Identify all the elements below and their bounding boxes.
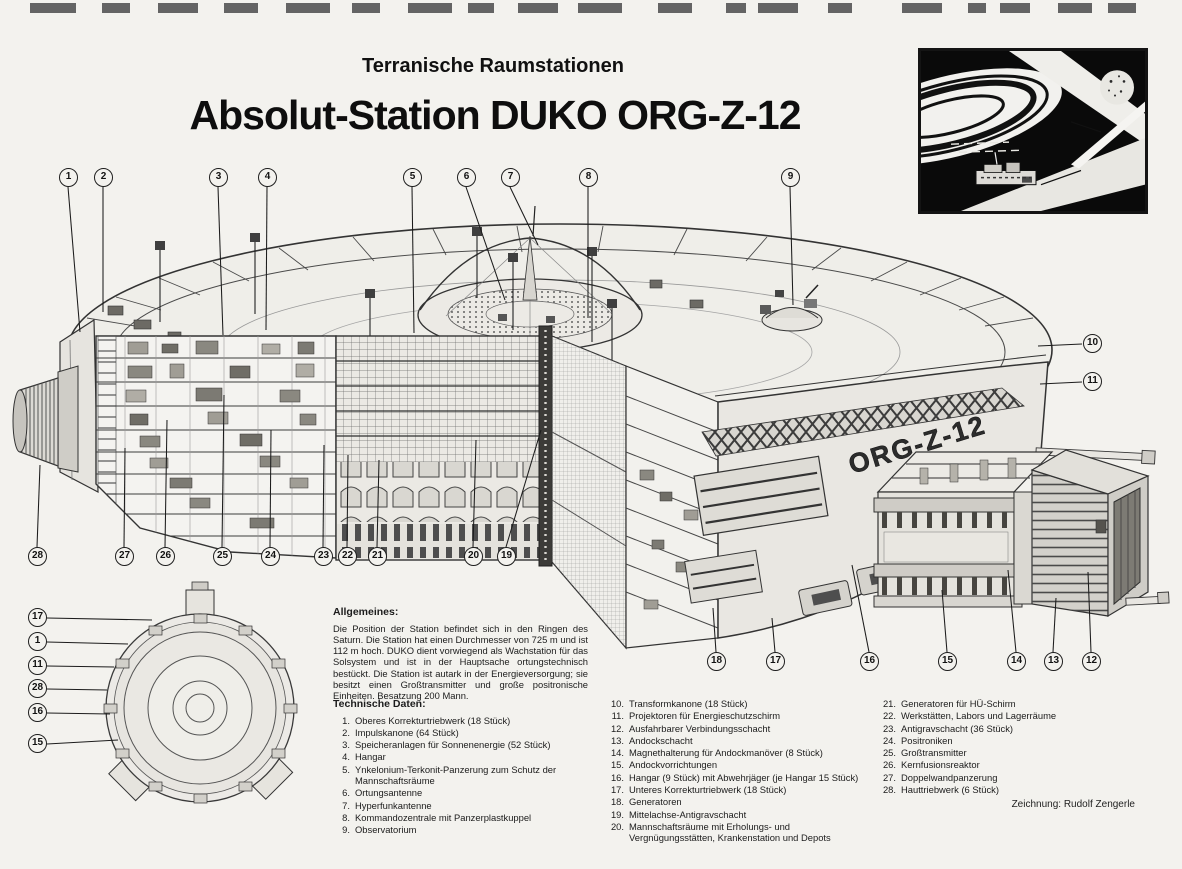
callout-16: 16 — [860, 652, 879, 671]
callout-21: 21 — [368, 547, 387, 566]
callout-1: 1 — [59, 168, 78, 187]
legend-item: 17.Unteres Korrekturtriebwerk (18 Stück) — [607, 784, 875, 795]
technische-daten-heading: Technische Daten: — [333, 698, 591, 711]
moon — [1100, 70, 1134, 104]
legend-column-2: 10.Transformkanone (18 Stück) 11.Projekt… — [607, 698, 875, 844]
legend-item: 9.Observatorium — [333, 824, 591, 835]
callout-3: 3 — [209, 168, 228, 187]
mini-callout-11: 11 — [28, 656, 47, 675]
allgemeines-heading: Allgemeines: — [333, 606, 588, 619]
callout-19: 19 — [497, 547, 516, 566]
legend-item: 10.Transformkanone (18 Stück) — [607, 698, 875, 709]
scanned-poster-page: ORG-Z-12 — [0, 0, 1182, 869]
legend-item: 19.Mittelachse-Antigravschacht — [607, 809, 875, 820]
legend-item: 16.Hangar (9 Stück) mit Abwehrjäger (je … — [607, 772, 875, 783]
mini-callout-15: 15 — [28, 734, 47, 753]
cutaway-deck-section — [96, 336, 336, 560]
mini-callout-17: 17 — [28, 608, 47, 627]
legend-item: 6.Ortungsantenne — [333, 787, 591, 798]
callout-26: 26 — [156, 547, 175, 566]
legend-item: 12.Ausfahrbarer Verbindungsschacht — [607, 723, 875, 734]
station-top-view-diagram — [104, 582, 297, 803]
legend-item: 13.Andockschacht — [607, 735, 875, 746]
callout-15: 15 — [938, 652, 957, 671]
allgemeines-text: Die Position der Station befindet sich i… — [333, 623, 588, 702]
legend-item: 3.Speicheranlagen für Sonnenenergie (52 … — [333, 739, 591, 750]
cutaway-storage-section — [336, 336, 540, 560]
callout-11: 11 — [1083, 372, 1102, 391]
callout-22: 22 — [338, 547, 357, 566]
station-cutaway-drawing: ORG-Z-12 — [13, 206, 1169, 648]
legend-item: 20.Mannschaftsräume mit Erholungs- und V… — [607, 821, 875, 844]
central-axis-shaft — [539, 326, 552, 566]
legend-item: 23.Antigravschacht (36 Stück) — [879, 723, 1149, 734]
legend-item: 28.Hauttriebwerk (6 Stück) — [879, 784, 1149, 795]
callout-14: 14 — [1007, 652, 1026, 671]
transmitter-module — [874, 445, 1169, 616]
legend-item: 18.Generatoren — [607, 796, 875, 807]
hull-thruster — [13, 320, 98, 492]
callout-20: 20 — [464, 547, 483, 566]
legend-item: 5.Ynkelonium-Terkonit-Panzerung zum Schu… — [333, 764, 591, 787]
callout-27: 27 — [115, 547, 134, 566]
callout-12: 12 — [1082, 652, 1101, 671]
callout-4: 4 — [258, 168, 277, 187]
mini-callout-1: 1 — [28, 632, 47, 651]
callout-28: 28 — [28, 547, 47, 566]
legend-item: 11.Projektoren für Energieschutzschirm — [607, 710, 875, 721]
page-title: Absolut-Station DUKO ORG-Z-12 — [170, 92, 820, 139]
film-perforation-strip — [30, 3, 1136, 13]
inset-illustration — [918, 48, 1148, 214]
legend-item: 1.Oberes Korrekturtriebwerk (18 Stück) — [333, 715, 591, 726]
legend-item: 7.Hyperfunkantenne — [333, 800, 591, 811]
artist-credit: Zeichnung: Rudolf Zengerle — [935, 799, 1135, 810]
legend-item: 24.Positroniken — [879, 735, 1149, 746]
page-kicker: Terranische Raumstationen — [293, 55, 693, 78]
legend-item: 21.Generatoren für HÜ-Schirm — [879, 698, 1149, 709]
legend-item: 4.Hangar — [333, 751, 591, 762]
allgemeines-block: Allgemeines: Die Position der Station be… — [333, 606, 588, 702]
legend-item: 26.Kernfusionsreaktor — [879, 759, 1149, 770]
technische-daten-block: Technische Daten: 1.Oberes Korrekturtrie… — [333, 698, 591, 836]
saturn-rings-scene — [921, 51, 1145, 211]
callout-2: 2 — [94, 168, 113, 187]
legend-item: 15.Andockvorrichtungen — [607, 759, 875, 770]
callout-5: 5 — [403, 168, 422, 187]
callout-13: 13 — [1044, 652, 1063, 671]
callout-7: 7 — [501, 168, 520, 187]
callout-25: 25 — [213, 547, 232, 566]
callout-23: 23 — [314, 547, 333, 566]
legend-column-3: 21.Generatoren für HÜ-Schirm 22.Werkstät… — [879, 698, 1149, 796]
callout-17: 17 — [766, 652, 785, 671]
mini-callout-16: 16 — [28, 703, 47, 722]
callout-18: 18 — [707, 652, 726, 671]
legend-item: 27.Doppelwandpanzerung — [879, 772, 1149, 783]
legend-item: 22.Werkstätten, Labors und Lagerräume — [879, 710, 1149, 721]
mini-callout-28: 28 — [28, 679, 47, 698]
callout-6: 6 — [457, 168, 476, 187]
legend-item: 14.Magnethalterung für Andockmanöver (8 … — [607, 747, 875, 758]
legend-item: 2.Impulskanone (64 Stück) — [333, 727, 591, 738]
callout-9: 9 — [781, 168, 800, 187]
legend-item: 25.Großtransmitter — [879, 747, 1149, 758]
callout-10: 10 — [1083, 334, 1102, 353]
legend-item: 8.Kommandozentrale mit Panzerplastkuppel — [333, 812, 591, 823]
callout-8: 8 — [579, 168, 598, 187]
callout-24: 24 — [261, 547, 280, 566]
